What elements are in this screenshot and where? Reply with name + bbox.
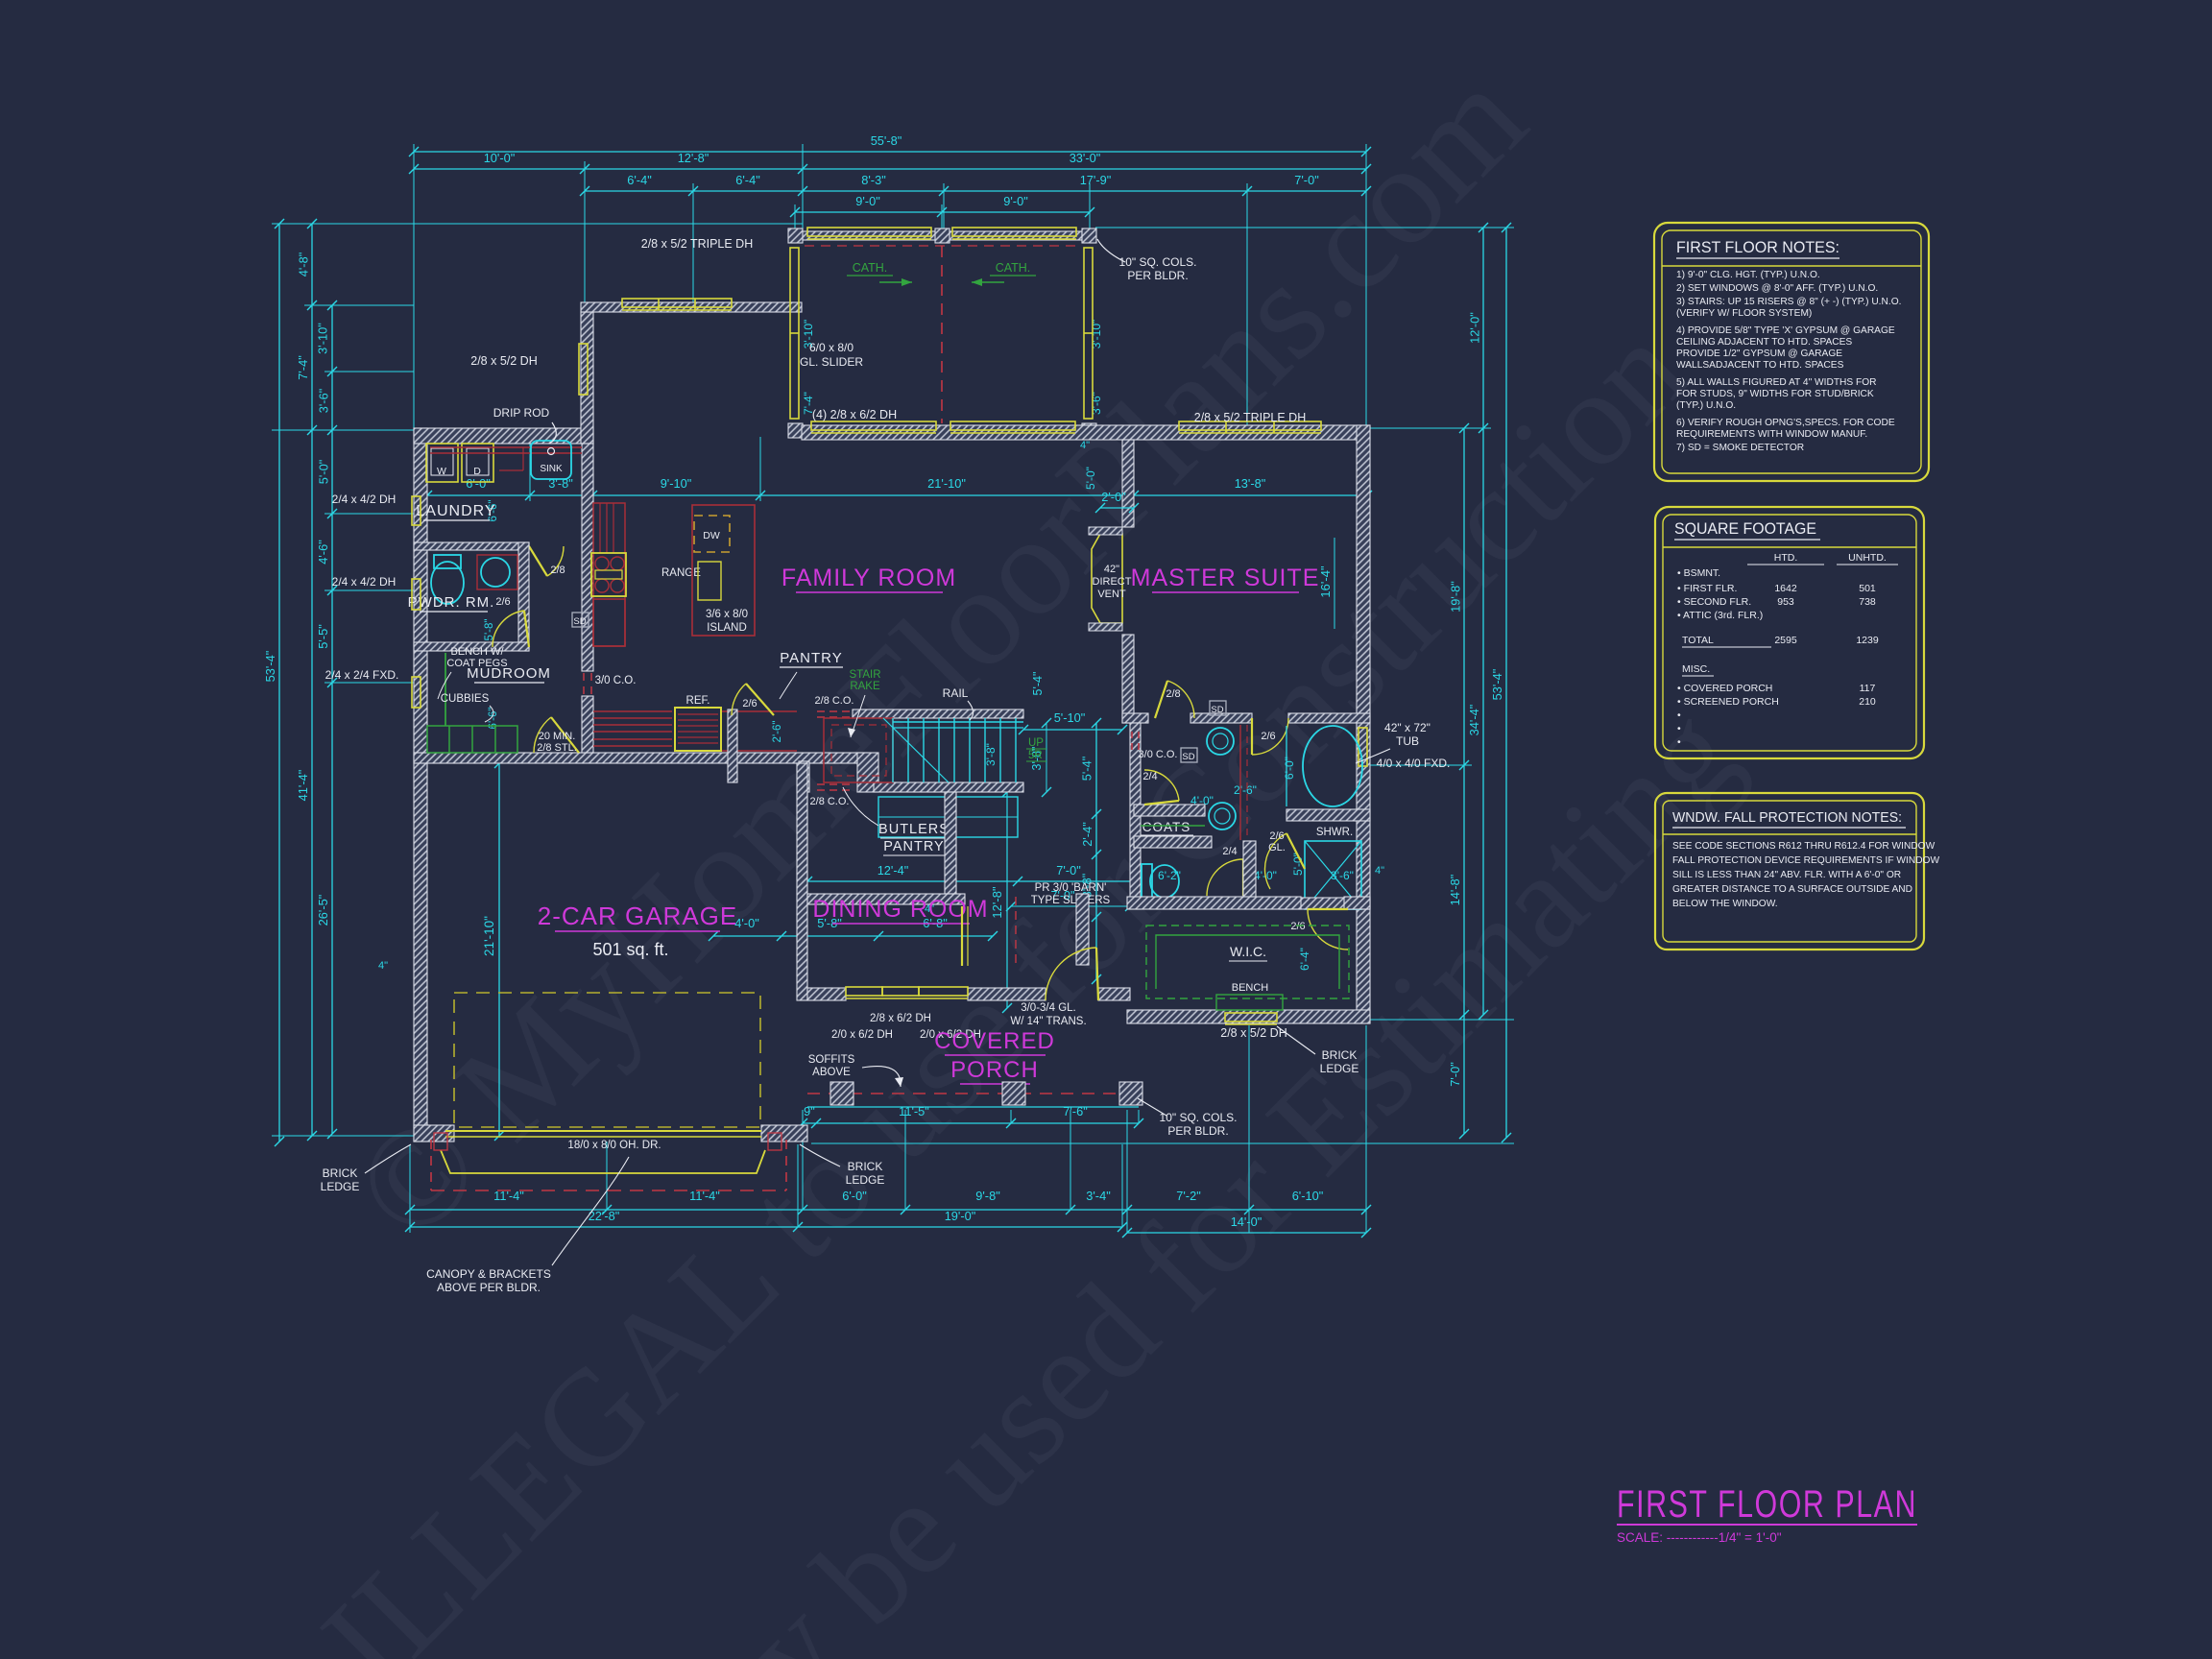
svg-text:RAKE: RAKE: [850, 681, 880, 692]
svg-text:W.I.C.: W.I.C.: [1230, 944, 1266, 959]
svg-text:3/0-3/4 GL.: 3/0-3/4 GL.: [1021, 1002, 1076, 1014]
svg-text:17'-9": 17'-9": [1080, 173, 1112, 187]
svg-text:3'-10": 3'-10": [1090, 320, 1103, 349]
svg-text:2/4: 2/4: [1142, 771, 1157, 782]
svg-text:12'-4": 12'-4": [878, 863, 909, 878]
svg-text:COVERED: COVERED: [934, 1028, 1055, 1054]
svg-text:738: 738: [1859, 596, 1876, 608]
svg-text:SD: SD: [573, 616, 586, 627]
svg-text:6/0 x 8/0: 6/0 x 8/0: [809, 341, 854, 354]
svg-text:LEDGE: LEDGE: [321, 1180, 360, 1193]
svg-text:(VERIFY W/ FLOOR SYSTEM): (VERIFY W/ FLOOR SYSTEM): [1676, 308, 1812, 319]
svg-text:117: 117: [1860, 683, 1876, 694]
svg-text:BENCH W/: BENCH W/: [451, 646, 505, 658]
svg-text:42": 42": [1104, 564, 1119, 575]
svg-text:9'-0": 9'-0": [855, 194, 879, 208]
svg-text:SEE CODE SECTIONS R612 THRU R6: SEE CODE SECTIONS R612 THRU R612.4 FOR W…: [1672, 841, 1935, 852]
svg-text:53'-4": 53'-4": [1490, 669, 1504, 701]
svg-text:LEDGE: LEDGE: [846, 1173, 885, 1187]
svg-text:5'-4": 5'-4": [1080, 757, 1094, 781]
svg-text:RAIL: RAIL: [943, 686, 969, 700]
svg-text:2/8 C.O.: 2/8 C.O.: [815, 695, 854, 707]
svg-text:4": 4": [378, 960, 388, 972]
svg-text:2/8 x 5/2 DH: 2/8 x 5/2 DH: [1220, 1026, 1286, 1040]
svg-text:12'-8": 12'-8": [990, 886, 1004, 919]
svg-text:4'-0": 4'-0": [734, 916, 758, 930]
svg-text:22'-8": 22'-8": [589, 1209, 620, 1223]
svg-text:STAIR: STAIR: [849, 669, 880, 681]
svg-text:2/4 x 2/4 FXD.: 2/4 x 2/4 FXD.: [325, 668, 399, 682]
svg-text:W/ 14" TRANS.: W/ 14" TRANS.: [1010, 1016, 1086, 1027]
svg-text:2'-6": 2'-6": [772, 721, 783, 743]
svg-text:•: •: [1677, 709, 1681, 721]
svg-text:PORCH: PORCH: [950, 1057, 1039, 1083]
svg-text:FOR STUDS, 9" WIDTHS FOR STUD/: FOR STUDS, 9" WIDTHS FOR STUD/BRICK: [1676, 389, 1874, 399]
svg-text:• COVERED PORCH: • COVERED PORCH: [1677, 683, 1772, 694]
svg-text:4'-8": 4'-8": [297, 252, 311, 276]
svg-text:COATS: COATS: [1142, 820, 1191, 834]
svg-text:4) PROVIDE 5/8" TYPE 'X' GYPSU: 4) PROVIDE 5/8" TYPE 'X' GYPSUM @ GARAGE: [1676, 325, 1895, 336]
svg-text:2/4: 2/4: [1222, 846, 1237, 857]
svg-text:3'-4": 3'-4": [1086, 1189, 1110, 1203]
svg-text:TOTAL: TOTAL: [1682, 635, 1714, 646]
svg-text:7) SD = SMOKE DETECTOR: 7) SD = SMOKE DETECTOR: [1676, 443, 1804, 453]
svg-text:2/6: 2/6: [1290, 921, 1305, 932]
svg-text:42" x 72": 42" x 72": [1384, 721, 1431, 734]
svg-text:PR 3/0 'BARN': PR 3/0 'BARN': [1035, 882, 1107, 894]
svg-text:CUBBIES: CUBBIES: [441, 693, 490, 705]
svg-text:3'-10": 3'-10": [316, 323, 330, 354]
svg-text:ABOVE: ABOVE: [812, 1067, 851, 1078]
svg-text:FIRST FLOOR PLAN: FIRST FLOOR PLAN: [1617, 1483, 1917, 1526]
svg-text:53'-4": 53'-4": [263, 651, 277, 683]
svg-text:5'-0": 5'-0": [1084, 467, 1097, 490]
svg-text:2/6: 2/6: [1269, 830, 1284, 842]
svg-text:7'-4": 7'-4": [296, 355, 310, 379]
svg-text:6'-4": 6'-4": [735, 173, 759, 187]
svg-text:BRICK: BRICK: [323, 1166, 358, 1180]
svg-text:3/0 C.O.: 3/0 C.O.: [1139, 749, 1178, 760]
svg-text:REF.: REF.: [686, 695, 710, 707]
svg-text:CATH.: CATH.: [996, 261, 1031, 275]
svg-text:PANTRY: PANTRY: [780, 650, 842, 666]
svg-text:SD: SD: [1182, 752, 1194, 762]
svg-text:14'-0": 14'-0": [1231, 1214, 1262, 1229]
svg-text:2/8 x 5/2 TRIPLE DH: 2/8 x 5/2 TRIPLE DH: [641, 237, 754, 251]
svg-text:2/8 x 6/2 DH: 2/8 x 6/2 DH: [870, 1013, 931, 1024]
svg-text:• BSMNT.: • BSMNT.: [1677, 567, 1720, 579]
svg-text:2/8 x 5/2 DH: 2/8 x 5/2 DH: [470, 354, 537, 368]
svg-text:WNDW. FALL PROTECTION NOTES:: WNDW. FALL PROTECTION NOTES:: [1672, 810, 1902, 826]
svg-text:BENCH: BENCH: [1232, 982, 1269, 994]
svg-text:4/0 x 4/0 FXD.: 4/0 x 4/0 FXD.: [1377, 757, 1451, 770]
svg-text:2/0 x 6/2 DH: 2/0 x 6/2 DH: [831, 1029, 893, 1041]
svg-text:8'-3": 8'-3": [861, 173, 885, 187]
svg-text:2/8: 2/8: [550, 565, 565, 576]
svg-text:7'-2": 7'-2": [1176, 1189, 1200, 1203]
svg-text:(4) 2/8 x 6/2 DH: (4) 2/8 x 6/2 DH: [812, 408, 897, 421]
svg-text:26'-5": 26'-5": [316, 895, 330, 926]
svg-text:13'-8": 13'-8": [1235, 476, 1266, 491]
svg-text:GL. SLIDER: GL. SLIDER: [800, 355, 863, 369]
svg-text:• SCREENED PORCH: • SCREENED PORCH: [1677, 696, 1779, 708]
svg-text:19'-0": 19'-0": [945, 1209, 976, 1223]
svg-text:3'-6": 3'-6": [317, 389, 331, 413]
svg-text:12'-8": 12'-8": [678, 151, 709, 165]
svg-text:2-CAR GARAGE: 2-CAR GARAGE: [538, 902, 738, 930]
svg-text:6'-4": 6'-4": [627, 173, 651, 187]
svg-text:12'-0": 12'-0": [1468, 312, 1482, 344]
svg-text:CATH.: CATH.: [853, 261, 888, 275]
svg-text:33'-0": 33'-0": [1070, 151, 1101, 165]
svg-text:DW: DW: [703, 530, 720, 541]
svg-text:1239: 1239: [1856, 635, 1879, 646]
svg-text:• ATTIC (3rd. FLR.): • ATTIC (3rd. FLR.): [1677, 610, 1763, 621]
svg-text:MASTER SUITE: MASTER SUITE: [1131, 565, 1320, 591]
svg-text:SQUARE FOOTAGE: SQUARE FOOTAGE: [1674, 520, 1816, 538]
svg-text:4": 4": [1080, 440, 1090, 451]
svg-text:D: D: [473, 466, 481, 477]
svg-text:10'-0": 10'-0": [484, 151, 516, 165]
svg-text:2) SET WINDOWS @ 8'-0" AFF. (T: 2) SET WINDOWS @ 8'-0" AFF. (TYP.) U.N.O…: [1676, 283, 1878, 294]
svg-text:9": 9": [804, 1104, 815, 1118]
svg-text:FAMILY ROOM: FAMILY ROOM: [781, 565, 956, 591]
svg-text:6'-0": 6'-0": [842, 1189, 866, 1203]
svg-text:SILL IS LESS THAN 24" ABV. FLR: SILL IS LESS THAN 24" ABV. FLR. WITH A 6…: [1672, 870, 1901, 880]
svg-text:•: •: [1677, 723, 1681, 734]
svg-text:2/8 x 5/2 TRIPLE DH: 2/8 x 5/2 TRIPLE DH: [1194, 411, 1307, 424]
svg-text:7'-6": 7'-6": [1063, 1104, 1087, 1118]
svg-text:LEDGE: LEDGE: [1320, 1062, 1359, 1075]
svg-text:2'-6": 2'-6": [1234, 783, 1257, 797]
svg-text:GL.: GL.: [1268, 842, 1286, 854]
svg-text:2'-4": 2'-4": [1080, 822, 1094, 846]
svg-text:SINK: SINK: [540, 464, 563, 474]
svg-text:BRICK: BRICK: [848, 1160, 883, 1173]
svg-text:2/8: 2/8: [1166, 688, 1180, 700]
svg-text:BRICK: BRICK: [1322, 1048, 1358, 1062]
svg-text:REQUIREMENTS WITH WINDOW MANUF: REQUIREMENTS WITH WINDOW MANUF.: [1676, 429, 1867, 440]
svg-text:9'-8": 9'-8": [975, 1189, 999, 1203]
svg-text:•: •: [1677, 736, 1681, 748]
svg-text:HTD.: HTD.: [1774, 552, 1798, 564]
svg-text:9'-0": 9'-0": [1003, 194, 1027, 208]
svg-text:1) 9'-0" CLG. HGT. (TYP.) U.N: 1) 9'-0" CLG. HGT. (TYP.) U.N.O.: [1676, 270, 1820, 280]
svg-text:DIRECT: DIRECT: [1093, 576, 1132, 588]
svg-text:5'-5": 5'-5": [316, 624, 330, 648]
svg-text:WALLSADJACENT TO HTD. SPACES: WALLSADJACENT TO HTD. SPACES: [1676, 360, 1844, 371]
svg-text:3) STAIRS: UP 15 RISERS @ 8" (: 3) STAIRS: UP 15 RISERS @ 8" (+ -) (TYP.…: [1676, 297, 1901, 307]
svg-text:UNHTD.: UNHTD.: [1848, 552, 1887, 564]
svg-text:5'-4": 5'-4": [1031, 672, 1045, 696]
svg-text:CEILING ADJACENT TO HTD. SPACE: CEILING ADJACENT TO HTD. SPACES: [1676, 337, 1852, 348]
svg-text:SD: SD: [1211, 705, 1223, 715]
svg-text:210: 210: [1859, 696, 1876, 708]
svg-text:10" SQ. COLS.: 10" SQ. COLS.: [1160, 1111, 1238, 1124]
svg-text:(TYP.) U.N.O.: (TYP.) U.N.O.: [1676, 400, 1736, 411]
svg-text:PER BLDR.: PER BLDR.: [1167, 1124, 1228, 1138]
svg-text:9'-10": 9'-10": [661, 476, 692, 491]
svg-text:6'-0": 6'-0": [466, 476, 490, 491]
svg-text:• SECOND FLR.: • SECOND FLR.: [1677, 596, 1751, 608]
svg-text:10" SQ. COLS.: 10" SQ. COLS.: [1119, 255, 1197, 269]
svg-text:PROVIDE 1/2" GYPSUM @ GARAGE: PROVIDE 1/2" GYPSUM @ GARAGE: [1676, 349, 1842, 359]
svg-text:W: W: [437, 466, 446, 477]
svg-text:6'-4": 6'-4": [1298, 948, 1311, 971]
svg-text:55'-8": 55'-8": [871, 133, 902, 148]
svg-text:ABOVE PER BLDR.: ABOVE PER BLDR.: [437, 1281, 541, 1294]
svg-text:2/4 x 4/2 DH: 2/4 x 4/2 DH: [332, 575, 397, 589]
svg-text:3/0 C.O.: 3/0 C.O.: [595, 675, 637, 686]
svg-text:4'-6": 4'-6": [316, 540, 330, 564]
svg-text:11'-5": 11'-5": [899, 1104, 929, 1118]
svg-text:14'-8": 14'-8": [1448, 875, 1462, 906]
svg-text:RANGE: RANGE: [661, 567, 701, 579]
svg-text:5'-0": 5'-0": [317, 460, 331, 484]
svg-text:SHWR.: SHWR.: [1316, 827, 1353, 838]
svg-text:COAT PEGS: COAT PEGS: [446, 658, 507, 669]
svg-text:3'-8": 3'-8": [984, 743, 998, 766]
svg-text:6) VERIFY ROUGH OPNG'S,SPECS.: 6) VERIFY ROUGH OPNG'S,SPECS. FOR CODE: [1676, 418, 1895, 428]
svg-text:2/8 STL.: 2/8 STL.: [537, 742, 577, 754]
svg-text:SCALE: ------------1/4" = 1'-0: SCALE: ------------1/4" = 1'-0": [1617, 1530, 1782, 1545]
svg-text:FIRST FLOOR NOTES:: FIRST FLOOR NOTES:: [1676, 239, 1839, 256]
svg-text:41'-4": 41'-4": [296, 770, 310, 802]
svg-text:PANTRY: PANTRY: [883, 839, 944, 854]
svg-text:16'-4": 16'-4": [1318, 565, 1333, 598]
svg-text:501: 501: [1859, 583, 1876, 594]
svg-text:5R: 5R: [1028, 750, 1043, 761]
svg-text:LAUNDRY: LAUNDRY: [416, 503, 495, 519]
svg-text:1642: 1642: [1774, 583, 1797, 594]
svg-text:3/6 x 8/0: 3/6 x 8/0: [706, 609, 748, 620]
svg-text:PER BLDR.: PER BLDR.: [1127, 269, 1188, 282]
svg-text:2'-0": 2'-0": [1101, 490, 1125, 504]
svg-text:7'-0": 7'-0": [1056, 863, 1080, 878]
svg-text:2/6: 2/6: [742, 698, 757, 709]
svg-text:6'-10": 6'-10": [1292, 1189, 1324, 1203]
svg-text:VENT: VENT: [1097, 589, 1126, 600]
svg-text:GREATER DISTANCE TO A SURFACE: GREATER DISTANCE TO A SURFACE OUTSIDE AN…: [1672, 884, 1912, 895]
svg-text:BELOW THE WINDOW.: BELOW THE WINDOW.: [1672, 899, 1778, 909]
svg-text:7'-0": 7'-0": [1448, 1062, 1462, 1086]
svg-text:7'-0": 7'-0": [1294, 173, 1318, 187]
svg-text:21'-10": 21'-10": [927, 476, 966, 491]
svg-text:CANOPY & BRACKETS: CANOPY & BRACKETS: [426, 1267, 551, 1281]
svg-text:MISC.: MISC.: [1682, 663, 1710, 675]
svg-text:2/6: 2/6: [495, 596, 510, 608]
svg-text:2595: 2595: [1774, 635, 1797, 646]
svg-text:FALL PROTECTION DEVICE REQUIRE: FALL PROTECTION DEVICE REQUIREMENTS IF W…: [1672, 855, 1939, 866]
svg-text:BUTLERS: BUTLERS: [878, 822, 950, 837]
svg-text:SOFFITS: SOFFITS: [808, 1054, 855, 1066]
svg-text:21'-10": 21'-10": [482, 916, 496, 956]
svg-text:2/4 x 4/2 DH: 2/4 x 4/2 DH: [332, 493, 397, 506]
svg-text:2/6: 2/6: [1261, 731, 1275, 742]
svg-text:20 MIN.: 20 MIN.: [539, 731, 576, 742]
svg-text:953: 953: [1777, 596, 1794, 608]
svg-text:19'-8": 19'-8": [1449, 581, 1463, 613]
svg-text:• FIRST FLR.: • FIRST FLR.: [1677, 583, 1737, 594]
svg-text:34'-4": 34'-4": [1467, 705, 1481, 736]
svg-text:501 sq. ft.: 501 sq. ft.: [592, 940, 668, 959]
svg-text:TYPE SLIDERS: TYPE SLIDERS: [1031, 895, 1111, 906]
svg-text:DRIP ROD: DRIP ROD: [493, 406, 550, 420]
svg-text:6'-0": 6'-0": [1283, 757, 1296, 780]
svg-text:3'-6": 3'-6": [1090, 392, 1103, 415]
svg-text:2/8 C.O.: 2/8 C.O.: [810, 796, 850, 807]
svg-text:18/0 x 8/0 OH. DR.: 18/0 x 8/0 OH. DR.: [567, 1140, 661, 1151]
svg-text:UP: UP: [1028, 737, 1044, 749]
svg-text:ISLAND: ISLAND: [707, 622, 747, 634]
svg-text:5'-10": 5'-10": [1054, 710, 1086, 725]
svg-text:5) ALL WALLS FIGURED AT 4" WID: 5) ALL WALLS FIGURED AT 4" WIDTHS FOR: [1676, 377, 1877, 388]
svg-text:4": 4": [1375, 865, 1384, 877]
svg-text:TUB: TUB: [1396, 734, 1419, 748]
